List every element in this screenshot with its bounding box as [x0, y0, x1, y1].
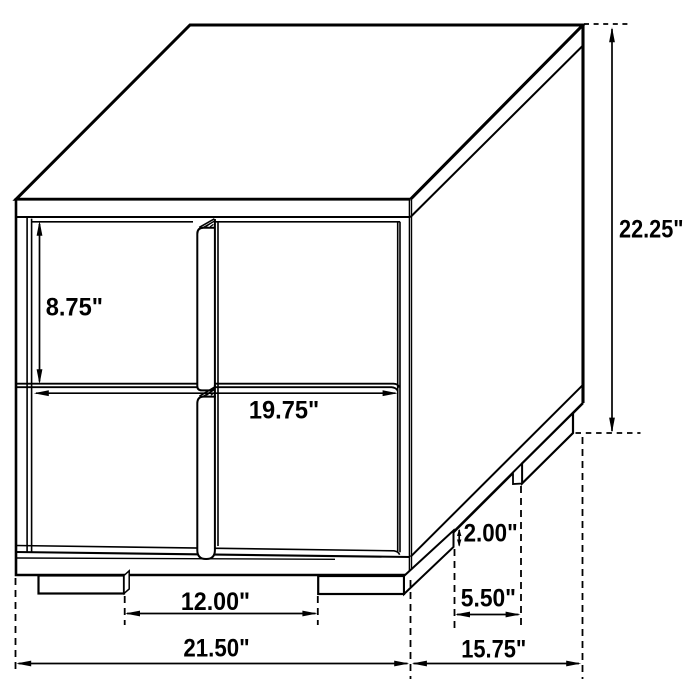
- svg-text:21.50": 21.50": [183, 636, 249, 663]
- svg-text:19.75": 19.75": [249, 397, 319, 424]
- svg-text:12.00": 12.00": [181, 589, 250, 616]
- svg-text:5.50": 5.50": [461, 586, 516, 613]
- svg-text:2.00": 2.00": [464, 521, 518, 548]
- svg-text:15.75": 15.75": [461, 637, 526, 664]
- svg-text:22.25": 22.25": [619, 216, 684, 243]
- svg-text:8.75": 8.75": [46, 295, 103, 322]
